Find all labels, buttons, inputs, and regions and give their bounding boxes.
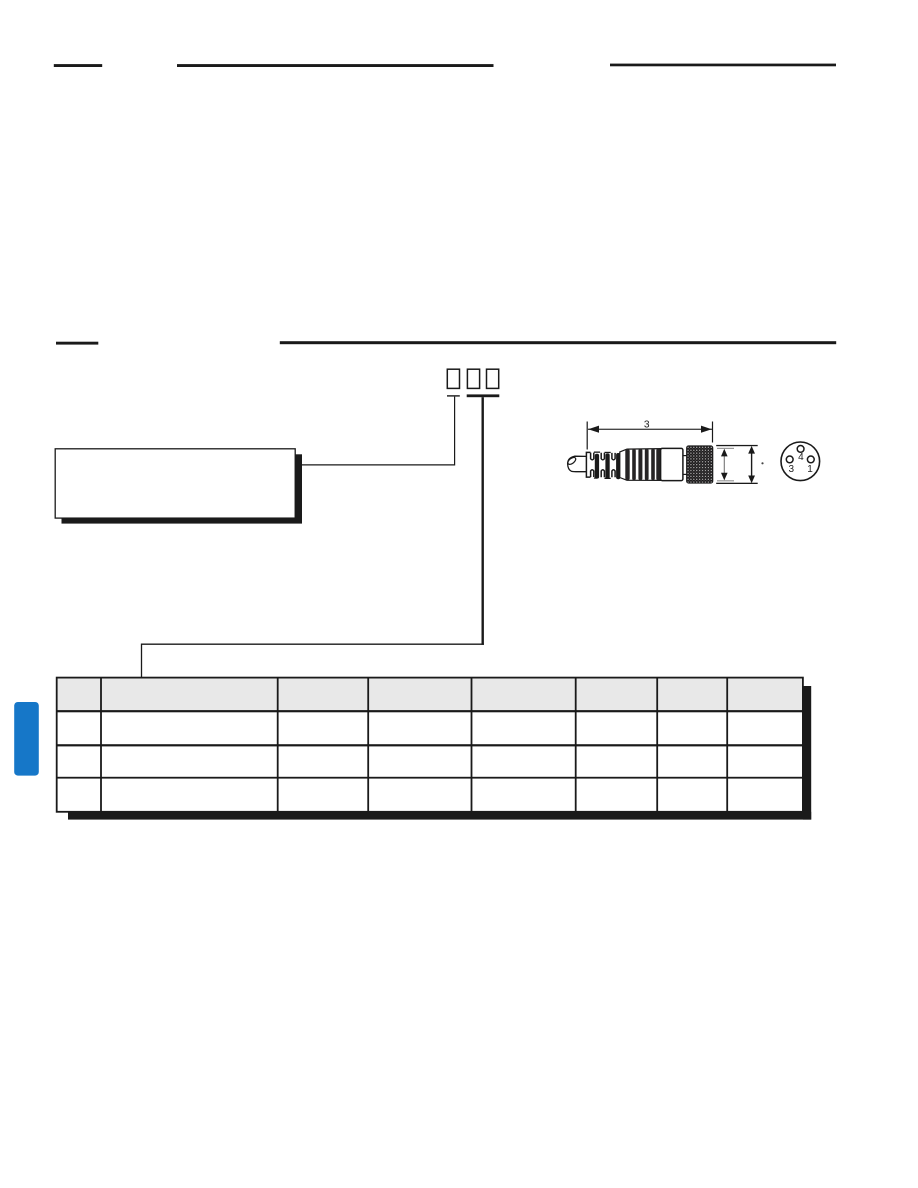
svg-text:4: 4 [798,452,804,463]
svg-text:1: 1 [807,464,813,475]
svg-text:3: 3 [644,419,650,430]
svg-text:3: 3 [789,464,795,475]
